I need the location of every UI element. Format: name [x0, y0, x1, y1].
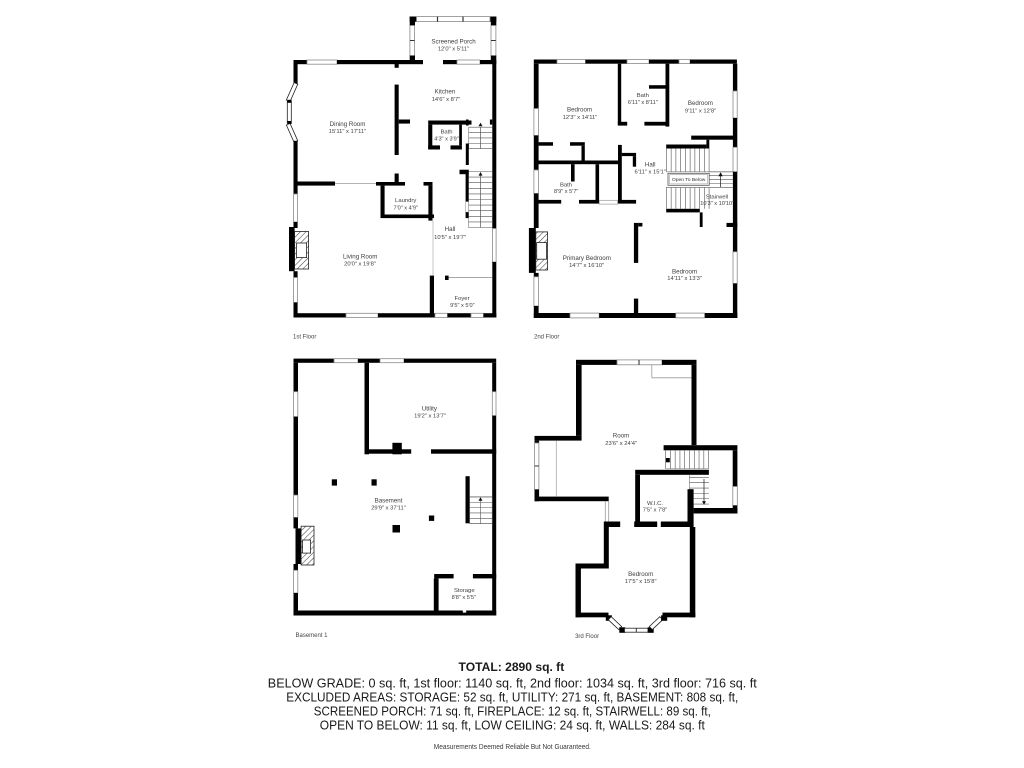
svg-text:Dining Room: Dining Room	[330, 121, 366, 128]
svg-text:Hall: Hall	[645, 162, 656, 169]
svg-text:Bath: Bath	[440, 130, 452, 136]
svg-text:7'5" x 7'8": 7'5" x 7'8"	[643, 507, 667, 513]
svg-text:Room: Room	[613, 433, 630, 440]
svg-text:2nd Floor: 2nd Floor	[534, 334, 559, 340]
svg-text:23'6" x 24'4": 23'6" x 24'4"	[605, 441, 637, 447]
svg-text:8'9" x 5'7": 8'9" x 5'7"	[554, 189, 578, 195]
svg-text:Bedroom: Bedroom	[672, 269, 697, 276]
svg-text:15'11" x 17'11": 15'11" x 17'11"	[329, 129, 366, 135]
svg-text:Storage: Storage	[454, 588, 475, 594]
svg-text:10'5" x 19'7": 10'5" x 19'7"	[434, 235, 466, 241]
svg-text:Open To Below: Open To Below	[672, 177, 706, 183]
svg-text:Bath: Bath	[560, 183, 572, 189]
svg-text:Bath: Bath	[637, 93, 649, 99]
svg-text:Measurements Deemed Reliable B: Measurements Deemed Reliable But Not Gua…	[434, 744, 591, 751]
svg-text:12'0" x 5'11": 12'0" x 5'11"	[438, 47, 469, 53]
svg-text:Living Room: Living Room	[343, 253, 377, 260]
svg-text:6'11" x 15'1": 6'11" x 15'1"	[635, 170, 666, 176]
svg-text:17'5" x 15'8": 17'5" x 15'8"	[625, 579, 657, 585]
svg-text:Basement 1: Basement 1	[296, 633, 329, 639]
svg-text:19'2" x 13'7": 19'2" x 13'7"	[414, 414, 446, 420]
svg-text:29'9" x 37'11": 29'9" x 37'11"	[371, 506, 406, 512]
svg-text:BELOW GRADE: 0 sq. ft, 1st flo: BELOW GRADE: 0 sq. ft, 1st floor: 1140 s…	[268, 676, 757, 690]
svg-text:10'3" x 10'10": 10'3" x 10'10"	[700, 201, 734, 207]
svg-text:OPEN TO BELOW: 11 sq. ft, LOW: OPEN TO BELOW: 11 sq. ft, LOW CEILING: 2…	[320, 719, 705, 733]
svg-text:12'3" x 14'11": 12'3" x 14'11"	[563, 115, 598, 121]
svg-text:Laundry: Laundry	[395, 198, 416, 204]
svg-text:7'0" x 4'9": 7'0" x 4'9"	[393, 205, 417, 211]
svg-text:Bedroom: Bedroom	[688, 100, 713, 107]
svg-text:Screened Porch: Screened Porch	[431, 38, 476, 45]
svg-text:Hall: Hall	[445, 226, 456, 233]
svg-text:Primary Bedroom: Primary Bedroom	[563, 255, 611, 262]
svg-text:4'3" x 3'9": 4'3" x 3'9"	[434, 137, 458, 143]
svg-text:9'5" x 5'0": 9'5" x 5'0"	[450, 303, 474, 309]
svg-text:20'0" x 19'8": 20'0" x 19'8"	[344, 261, 376, 267]
svg-text:W.I.C.: W.I.C.	[647, 501, 663, 507]
svg-text:6'11" x 8'11": 6'11" x 8'11"	[628, 100, 658, 106]
svg-text:14'7" x 16'10": 14'7" x 16'10"	[569, 263, 604, 269]
svg-text:14'6" x 8'7": 14'6" x 8'7"	[432, 97, 461, 103]
svg-text:3rd Floor: 3rd Floor	[575, 634, 599, 640]
svg-text:Utility: Utility	[422, 406, 438, 413]
svg-text:14'11" x 13'3": 14'11" x 13'3"	[667, 276, 702, 282]
svg-text:Kitchen: Kitchen	[435, 89, 456, 96]
svg-text:9'11" x 12'8": 9'11" x 12'8"	[685, 108, 716, 114]
svg-text:Foyer: Foyer	[454, 296, 469, 302]
svg-text:TOTAL: 2890 sq. ft: TOTAL: 2890 sq. ft	[459, 660, 565, 674]
svg-text:8'8" x 5'5": 8'8" x 5'5"	[452, 595, 476, 601]
svg-text:SCREENED PORCH: 71 sq. ft, FIR: SCREENED PORCH: 71 sq. ft, FIREPLACE: 12…	[314, 705, 711, 719]
svg-text:Bedroom: Bedroom	[567, 107, 592, 114]
svg-text:1st Floor: 1st Floor	[293, 334, 316, 340]
svg-text:Stairwell: Stairwell	[706, 195, 728, 201]
svg-text:EXCLUDED AREAS: STORAGE: 52 sq: EXCLUDED AREAS: STORAGE: 52 sq. ft, UTIL…	[286, 691, 738, 705]
svg-text:Bedroom: Bedroom	[628, 571, 653, 578]
svg-text:Basement: Basement	[375, 498, 403, 505]
